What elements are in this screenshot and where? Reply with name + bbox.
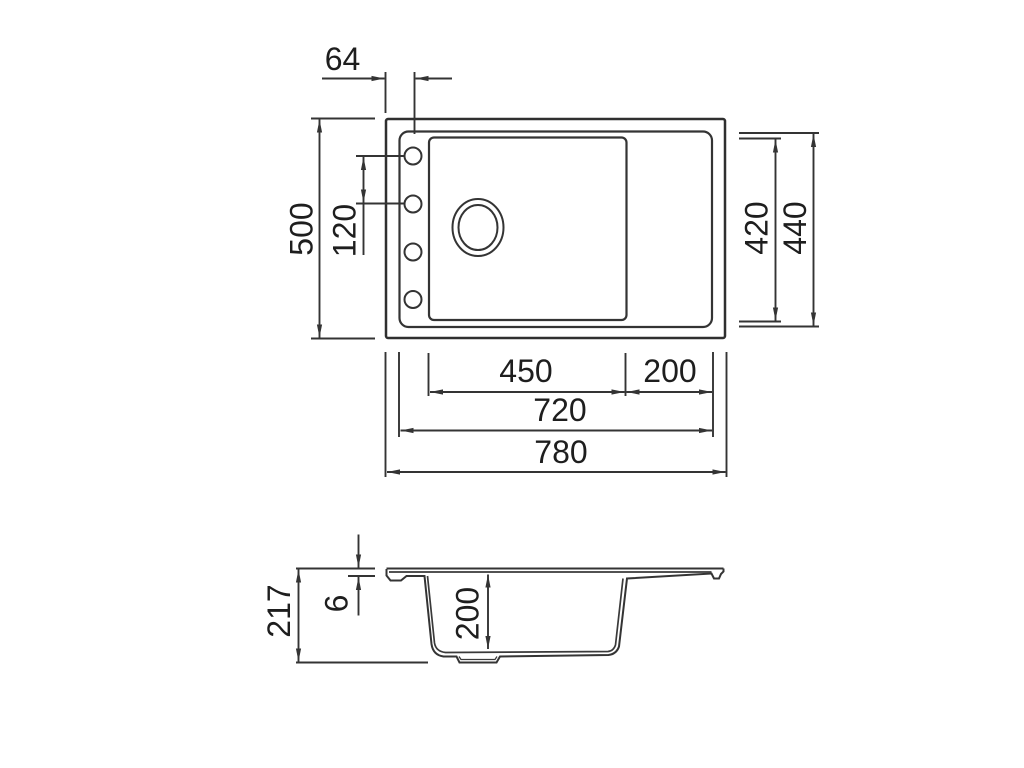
dim-hole-pitch: 120 (327, 156, 405, 257)
tap-hole-4 (405, 291, 422, 308)
sink-drawing-svg: 64 500 120 420 440 (0, 0, 1024, 768)
dim-total-height: 217 (261, 569, 428, 663)
tap-hole-1 (405, 148, 422, 165)
dim-rim-thickness: 6 (319, 535, 376, 616)
tap-hole-3 (405, 244, 422, 261)
technical-drawing-page: 64 500 120 420 440 (0, 0, 1024, 768)
dim-text-720: 720 (533, 392, 586, 428)
drain-outer (453, 199, 504, 256)
dim-text-500: 500 (284, 202, 320, 255)
section-drain-recess (459, 657, 497, 660)
dim-text-450: 450 (499, 353, 552, 389)
dim-text-200-depth: 200 (450, 587, 486, 640)
dim-text-6: 6 (319, 595, 355, 613)
plan-inner-rim (400, 132, 713, 328)
tap-hole-2 (405, 196, 422, 213)
dim-text-217: 217 (261, 584, 297, 637)
section-view (387, 569, 724, 663)
dim-text-440: 440 (777, 201, 813, 254)
dim-bowl-inner-depth: 420 (739, 139, 782, 322)
dim-bottom-stack: 450 200 720 780 (386, 352, 727, 477)
plan-view (386, 119, 725, 338)
dim-text-120: 120 (327, 204, 363, 257)
dim-bowl-depth: 200 (450, 575, 489, 650)
dim-text-420: 420 (739, 201, 775, 254)
plan-outer-edge (386, 119, 725, 338)
dim-text-780: 780 (534, 434, 587, 470)
dim-text-200-drainer: 200 (643, 353, 696, 389)
dim-text-64: 64 (325, 41, 361, 77)
drain-inner (459, 205, 498, 250)
